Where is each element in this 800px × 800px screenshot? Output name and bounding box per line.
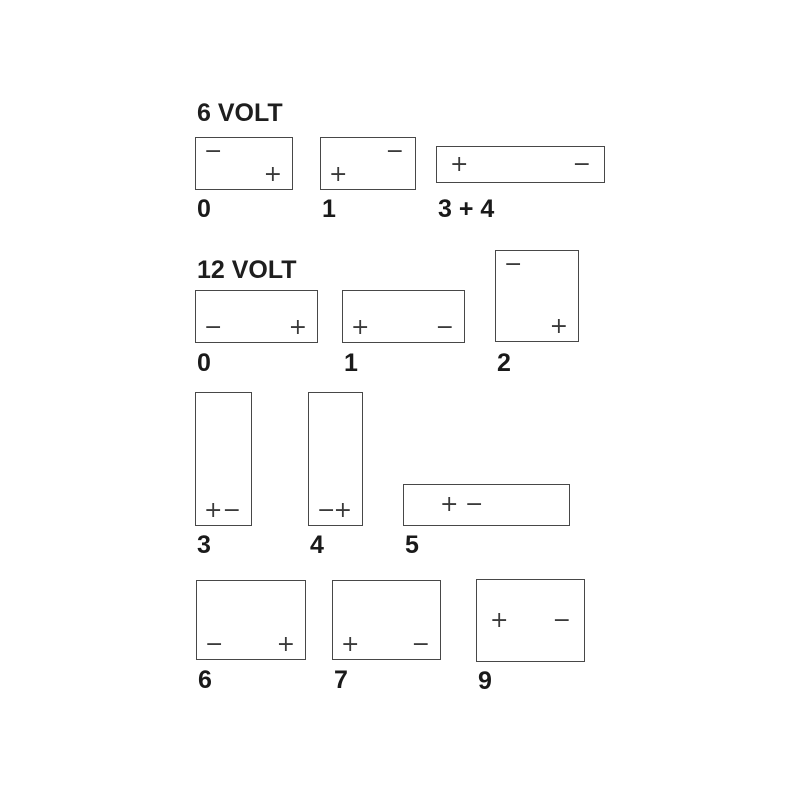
battery-label-12v-1: 1	[344, 350, 358, 378]
battery-box-12v-6: − +	[196, 580, 306, 660]
minus-terminal: −	[204, 141, 222, 163]
battery-box-12v-4: − +	[308, 392, 363, 526]
battery-box-6v-1: − +	[320, 137, 416, 190]
battery-label-12v-0: 0	[197, 350, 211, 378]
battery-box-12v-3: + −	[195, 392, 252, 526]
plus-terminal: +	[277, 634, 295, 656]
minus-terminal: −	[553, 610, 571, 632]
plus-terminal: +	[440, 494, 458, 516]
battery-label-6v-1: 1	[322, 196, 336, 224]
plus-terminal: +	[264, 164, 282, 186]
plus-terminal: +	[550, 316, 568, 338]
minus-terminal: −	[465, 494, 483, 516]
battery-terminal-layout-diagram: 6 VOLT − + 0 − + 1 + − 3 + 4 12 VOLT − +…	[0, 0, 800, 800]
battery-box-12v-1: + −	[342, 290, 465, 343]
battery-label-12v-3: 3	[197, 532, 211, 560]
minus-terminal: −	[204, 317, 222, 339]
minus-terminal: −	[504, 254, 522, 276]
battery-label-12v-9: 9	[478, 668, 492, 696]
battery-label-12v-6: 6	[198, 667, 212, 695]
plus-terminal: +	[289, 317, 307, 339]
battery-box-12v-2: − +	[495, 250, 579, 342]
battery-label-6v-0: 0	[197, 196, 211, 224]
battery-box-12v-5: + −	[403, 484, 570, 526]
minus-terminal: −	[436, 317, 454, 339]
plus-terminal: +	[329, 164, 347, 186]
minus-terminal: −	[386, 141, 404, 163]
battery-label-12v-5: 5	[405, 532, 419, 560]
plus-terminal: +	[490, 610, 508, 632]
section-heading-6-volt: 6 VOLT	[197, 100, 283, 128]
plus-terminal: +	[341, 634, 359, 656]
battery-label-6v-3-4: 3 + 4	[438, 196, 494, 224]
battery-box-12v-0: − +	[195, 290, 318, 343]
plus-terminal: +	[351, 317, 369, 339]
battery-box-6v-0: − +	[195, 137, 293, 190]
plus-terminal: +	[450, 154, 468, 176]
battery-label-12v-4: 4	[310, 532, 324, 560]
minus-terminal: −	[573, 154, 591, 176]
plus-terminal: +	[204, 500, 222, 522]
section-heading-12-volt: 12 VOLT	[197, 257, 297, 285]
battery-label-12v-7: 7	[334, 667, 348, 695]
minus-terminal: −	[223, 500, 241, 522]
battery-box-6v-3-4: + −	[436, 146, 605, 183]
plus-terminal: +	[334, 500, 352, 522]
battery-box-12v-7: + −	[332, 580, 441, 660]
minus-terminal: −	[205, 634, 223, 656]
battery-label-12v-2: 2	[497, 350, 511, 378]
battery-box-12v-9: + −	[476, 579, 585, 662]
minus-terminal: −	[412, 634, 430, 656]
